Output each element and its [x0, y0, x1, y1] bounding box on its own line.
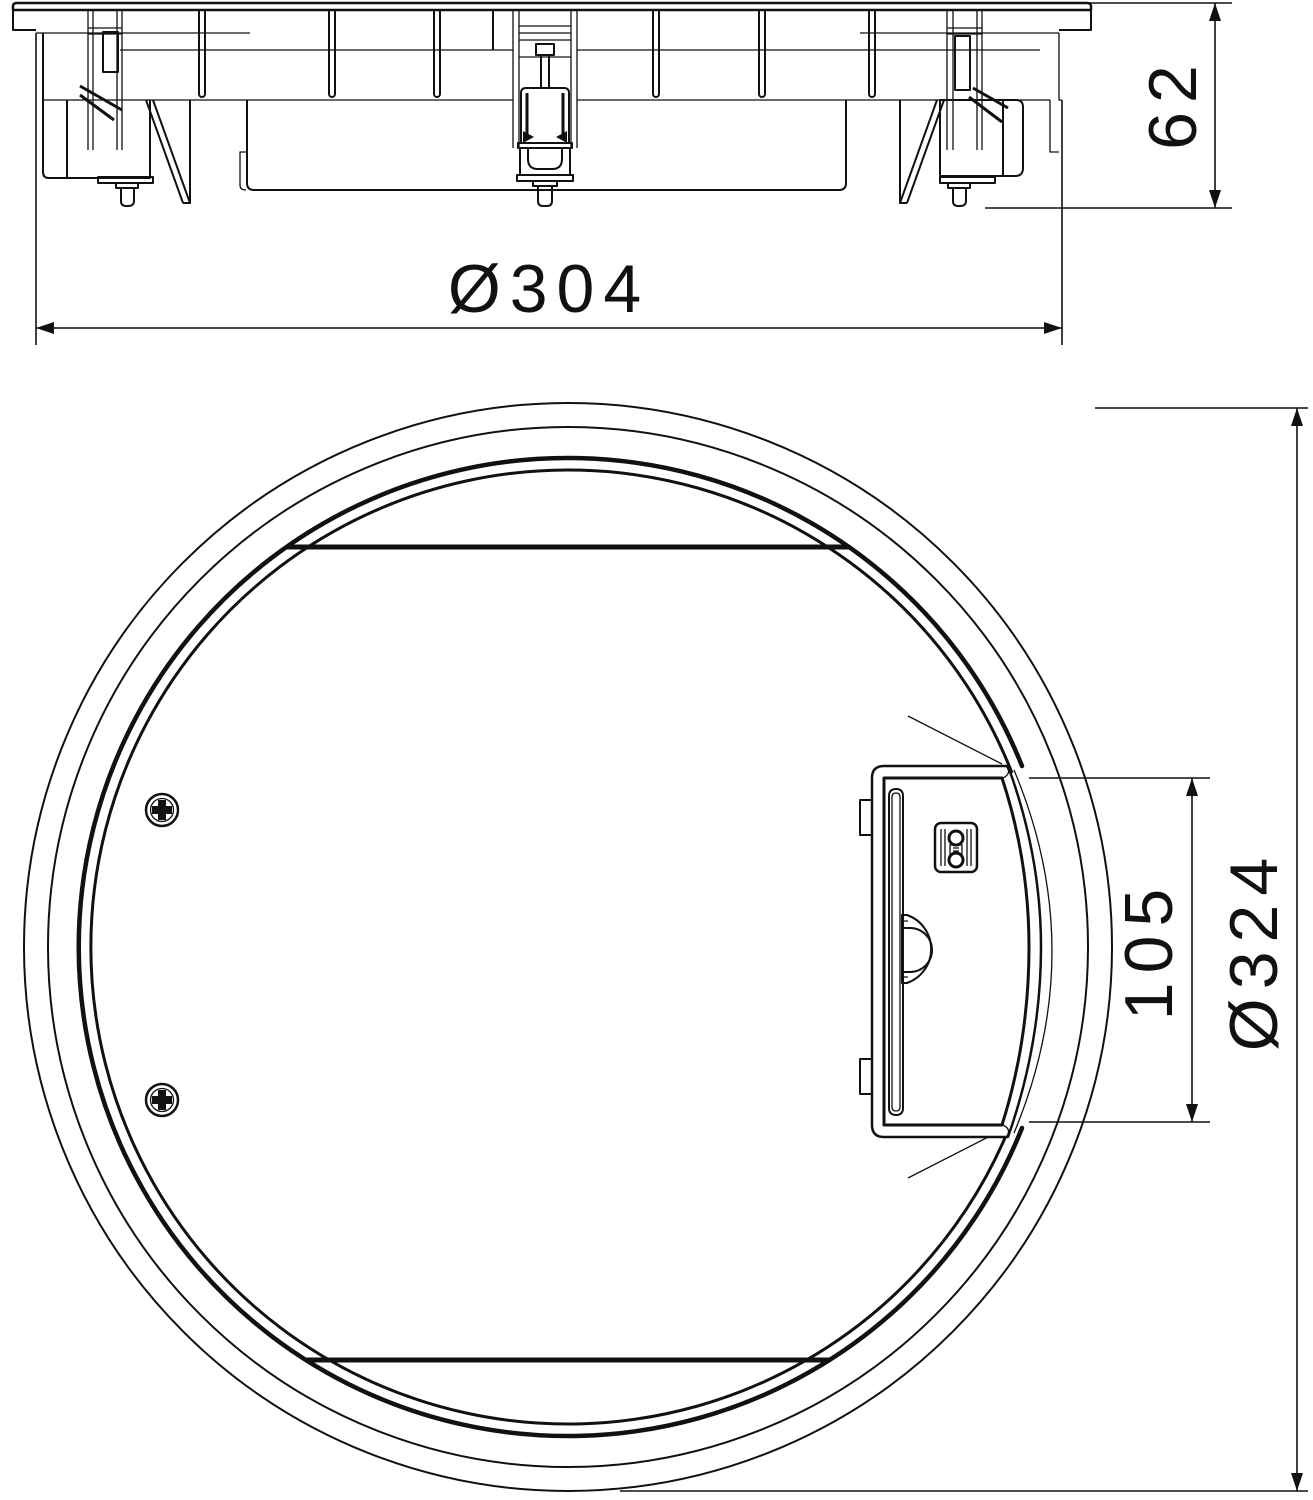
- center-fastener-assembly: [513, 10, 577, 206]
- flange-profile: [13, 3, 1091, 10]
- technical-drawing: 62 Ø304 105 Ø324: [0, 0, 1313, 1500]
- left-gusset: [146, 100, 190, 203]
- dim-label-304: Ø304: [448, 251, 650, 327]
- lock-fitting: [935, 823, 977, 872]
- dim-label-324: Ø324: [1216, 849, 1292, 1051]
- dim-latch-height-105: 105: [1029, 778, 1210, 1122]
- dimensions: 62 Ø304 105 Ø324: [36, 3, 1308, 1491]
- plan-view: [24, 403, 1112, 1491]
- latch-assembly: [860, 765, 1052, 1138]
- right-fastener-assembly: [900, 10, 1062, 206]
- tray-outline: [247, 100, 846, 190]
- left-fastener-assembly: [43, 10, 190, 206]
- dim-label-62: 62: [1135, 56, 1211, 150]
- side-section-view: [13, 3, 1091, 206]
- lid-screw-top: [146, 794, 178, 826]
- right-screw: [953, 188, 966, 206]
- flange-bevels: [13, 10, 1091, 30]
- lid-screw-bottom: [146, 1084, 178, 1116]
- latch-plate-tabs: [860, 800, 872, 1094]
- left-screw: [121, 188, 134, 206]
- right-gusset: [900, 100, 944, 203]
- tray-step: [240, 152, 247, 190]
- dim-label-105: 105: [1111, 880, 1187, 1020]
